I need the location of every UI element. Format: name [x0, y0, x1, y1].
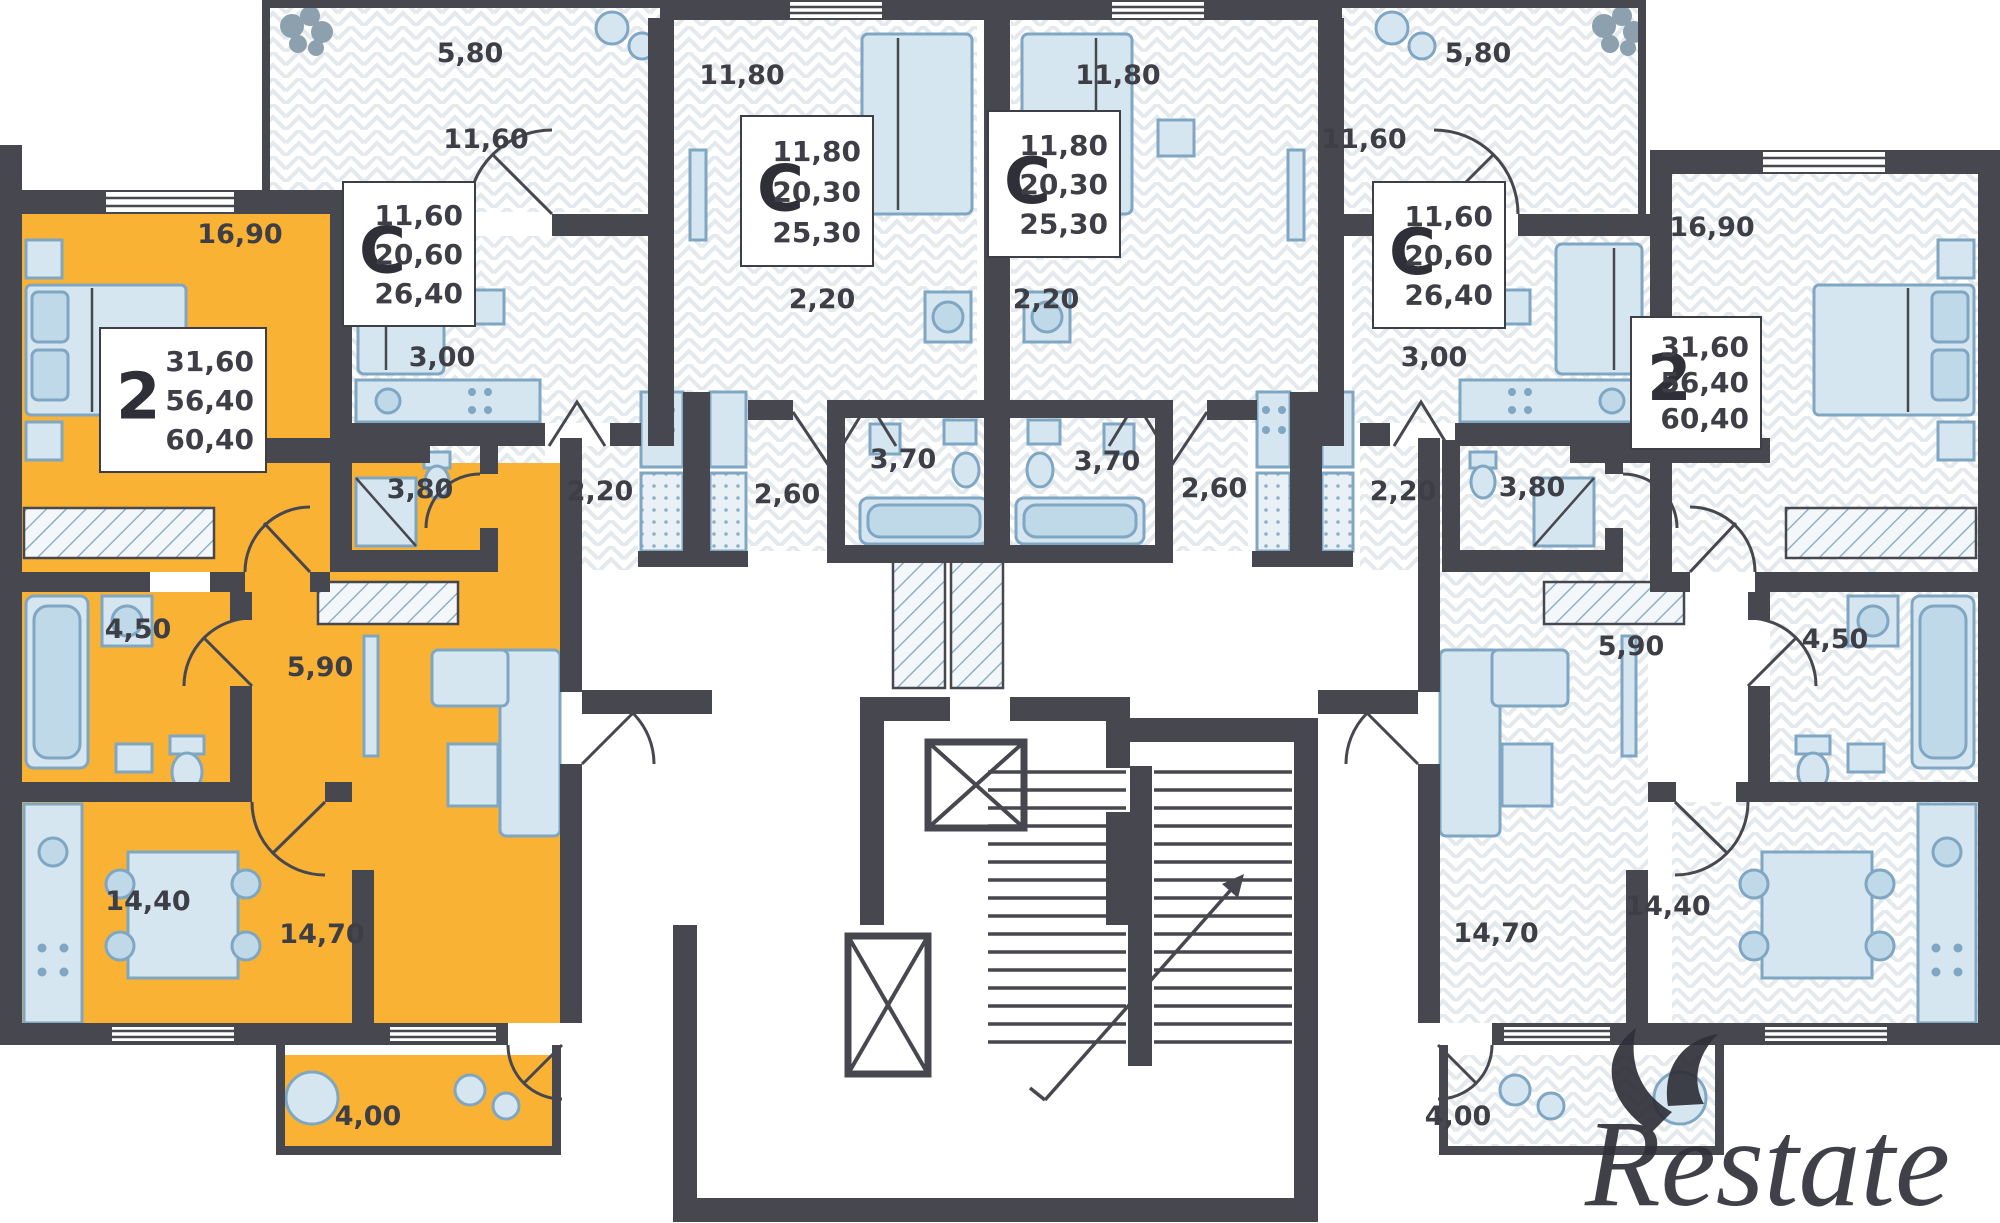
apartment-info-box: С11,6020,6026,40: [343, 182, 475, 326]
room-area-label: 3,80: [1499, 472, 1566, 503]
apartment-area-value: 60,40: [1660, 402, 1749, 435]
apartment-area-value: 26,40: [374, 277, 463, 310]
room-area-label: 11,80: [699, 60, 784, 91]
room-area-label: 14,40: [105, 886, 190, 917]
room-area-label: 2,20: [1013, 284, 1080, 315]
room-area-label: 3,80: [387, 474, 454, 505]
room-area-label: 2,60: [1181, 473, 1248, 504]
kitchen-right-studio: [1460, 380, 1644, 422]
room-area-label: 11,80: [1075, 60, 1160, 91]
room-area-label: 4,50: [1802, 624, 1869, 655]
elevator-core: [848, 742, 1292, 1100]
floor-plan: 5,8011,8011,805,8011,6011,6016,9016,903,…: [0, 0, 2000, 1223]
room-area-label: 4,50: [105, 614, 172, 645]
room-area-label: 3,00: [1401, 342, 1468, 373]
apartment-area-value: 56,40: [1660, 366, 1749, 399]
room-area-label: 16,90: [1669, 212, 1754, 243]
apartment-area-value: 11,60: [374, 199, 463, 232]
nightstand: [26, 240, 62, 278]
room-area-label: 2,60: [754, 479, 821, 510]
room-area-label: 4,00: [335, 1101, 402, 1132]
apartment-area-value: 11,80: [772, 135, 861, 168]
room-area-label: 11,60: [443, 124, 528, 155]
apartment-area-value: 11,60: [1404, 200, 1493, 233]
window: [390, 1027, 496, 1041]
apartment-info-box: С11,6020,6026,40: [1373, 182, 1505, 328]
room-area-label: 2,20: [1370, 476, 1437, 507]
room-area-label: 5,90: [287, 652, 354, 683]
floor-plan-page: 5,8011,8011,805,8011,6011,6016,9016,903,…: [0, 0, 2000, 1223]
apartment-area-value: 25,30: [1019, 208, 1108, 241]
bed-right: [1814, 285, 1974, 415]
room-area-label: 4,00: [1425, 1101, 1492, 1132]
elevator-icon: [928, 742, 1130, 828]
apartment-area-value: 31,60: [165, 345, 254, 378]
room-area-label: 5,90: [1598, 631, 1665, 662]
room-area-label: 3,70: [1074, 446, 1141, 477]
watermark-text: Restate: [1584, 1095, 1950, 1223]
window: [1112, 2, 1204, 18]
nightstand: [1938, 422, 1974, 460]
apartment-area-value: 20,60: [1404, 239, 1493, 272]
apartment-area-value: 20,60: [374, 238, 463, 271]
kitchen-left-studio: [356, 380, 540, 422]
room-area-label: 11,60: [1321, 124, 1406, 155]
apartment-info-box: С11,8020,3025,30: [988, 111, 1120, 257]
room-area-label: 2,20: [789, 284, 856, 315]
apartment-info-box: 231,6056,4060,40: [1631, 317, 1761, 449]
window: [1504, 1027, 1610, 1041]
room-area-label: 14,40: [1625, 891, 1710, 922]
nightstand: [1938, 240, 1974, 278]
room-area-label: 14,70: [1453, 918, 1538, 949]
apartment-area-value: 20,30: [772, 176, 861, 209]
elevator-icon: [848, 936, 928, 1074]
apartment-type-letter: 2: [116, 361, 161, 435]
apartment-area-value: 56,40: [165, 384, 254, 417]
apartment-area-value: 31,60: [1660, 331, 1749, 364]
room-area-label: 5,80: [1445, 38, 1512, 69]
apartment-area-value: 20,30: [1019, 168, 1108, 201]
nightstand: [26, 422, 62, 460]
balcony-door-gap: [468, 214, 552, 236]
apartment-area-value: 26,40: [1404, 279, 1493, 312]
room-area-label: 16,90: [197, 219, 282, 250]
apartment-area-value: 11,80: [1019, 129, 1108, 162]
window: [790, 2, 882, 18]
apartment-info-box: С11,8020,3025,30: [741, 116, 873, 266]
window: [106, 192, 234, 212]
room-area-label: 2,20: [567, 476, 634, 507]
room-area-label: 14,70: [279, 919, 364, 950]
window: [1763, 152, 1885, 172]
window: [1765, 1027, 1887, 1041]
window: [112, 1027, 234, 1041]
room-area-label: 3,00: [409, 342, 476, 373]
apartment-area-value: 60,40: [165, 423, 254, 456]
room-area-label: 3,70: [870, 444, 937, 475]
apartment-info-box: 231,6056,4060,40: [100, 328, 266, 472]
apartment-area-value: 25,30: [772, 216, 861, 249]
room-area-label: 5,80: [437, 38, 504, 69]
